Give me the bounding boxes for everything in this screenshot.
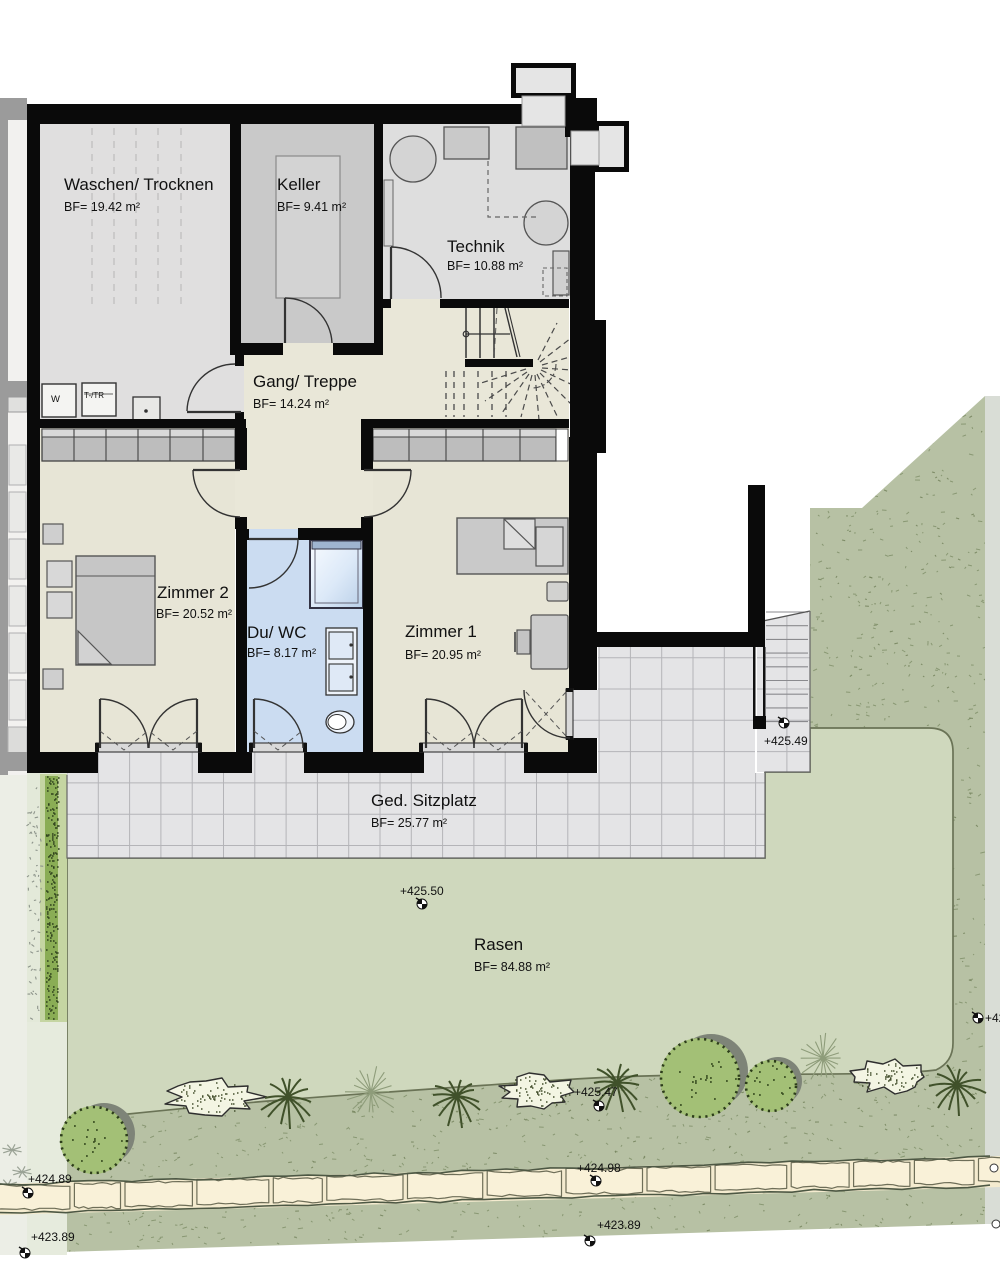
svg-text:+425.50: +425.50: [400, 884, 444, 898]
svg-text:Zimmer 2: Zimmer 2: [157, 583, 229, 602]
svg-text:BF= 20.95 m²: BF= 20.95 m²: [405, 648, 481, 662]
svg-text:+424.98: +424.98: [577, 1161, 621, 1175]
svg-text:Keller: Keller: [277, 175, 321, 194]
svg-text:BF= 8.17 m²: BF= 8.17 m²: [247, 646, 316, 660]
svg-text:+42: +42: [985, 1011, 1000, 1025]
svg-text:+425.49: +425.49: [764, 734, 808, 748]
svg-text:BF= 25.77 m²: BF= 25.77 m²: [371, 816, 447, 830]
svg-text:BF= 10.88 m²: BF= 10.88 m²: [447, 259, 523, 273]
svg-text:Technik: Technik: [447, 237, 505, 256]
svg-text:+423.89: +423.89: [597, 1218, 641, 1232]
svg-text:Rasen: Rasen: [474, 935, 523, 954]
svg-text:W: W: [51, 394, 60, 405]
svg-text:+424.89: +424.89: [28, 1172, 72, 1186]
svg-text:Waschen/ Trocknen: Waschen/ Trocknen: [64, 175, 214, 194]
svg-text:BF= 19.42 m²: BF= 19.42 m²: [64, 200, 140, 214]
svg-text:BF= 20.52 m²: BF= 20.52 m²: [156, 607, 232, 621]
svg-text:Du/ WC: Du/ WC: [247, 623, 307, 642]
svg-text:Zimmer 1: Zimmer 1: [405, 622, 477, 641]
svg-text:BF= 9.41 m²: BF= 9.41 m²: [277, 200, 346, 214]
svg-text:T-/TR: T-/TR: [84, 391, 104, 400]
svg-text:BF= 84.88 m²: BF= 84.88 m²: [474, 960, 550, 974]
svg-text:Ged. Sitzplatz: Ged. Sitzplatz: [371, 791, 477, 810]
svg-text:+425.47: +425.47: [574, 1085, 618, 1099]
svg-text:+423.89: +423.89: [31, 1230, 75, 1244]
svg-text:Gang/ Treppe: Gang/ Treppe: [253, 372, 357, 391]
svg-text:BF= 14.24 m²: BF= 14.24 m²: [253, 397, 329, 411]
